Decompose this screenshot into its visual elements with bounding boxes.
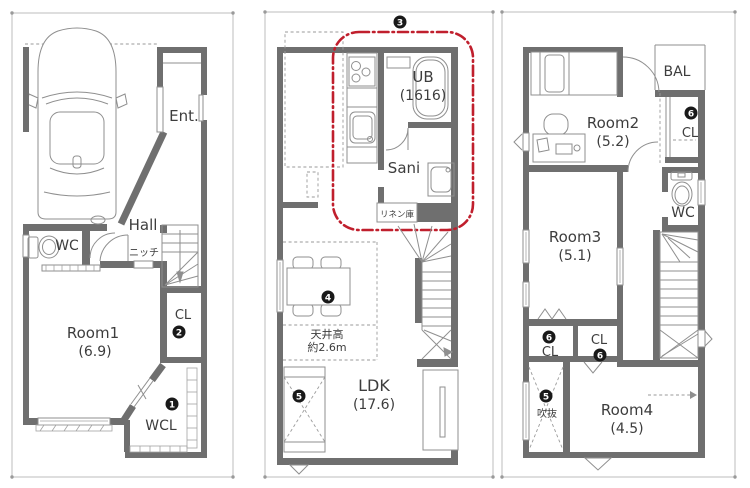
stairs-f2 — [398, 224, 452, 359]
marker-6-room2: 6 — [685, 107, 698, 120]
wcl-hatch — [130, 368, 197, 452]
svg-text:4: 4 — [325, 294, 331, 304]
label-void: 吹抜 — [537, 407, 557, 420]
desk-icon — [533, 114, 585, 162]
marker-3: 3 — [394, 16, 407, 29]
label-hall: Hall — [129, 216, 158, 234]
label-ub: UB — [412, 68, 433, 86]
label-room2-size: (5.2) — [596, 134, 629, 150]
room4-arrow — [648, 391, 697, 399]
label-ceiling-1: 天井高 — [311, 327, 344, 341]
svg-text:6: 6 — [688, 110, 694, 120]
casement-window-mark — [514, 134, 522, 150]
label-bal: BAL — [664, 64, 691, 80]
marker-5-f2: 5 — [293, 390, 306, 403]
stairs-f3 — [660, 232, 698, 358]
wc-door-arc — [90, 233, 115, 258]
car-icon — [27, 28, 127, 219]
balcony-door-arc — [623, 57, 659, 92]
kitchen-counter — [347, 53, 377, 163]
label-cl-f1: CL — [175, 308, 192, 323]
marker-4: 4 — [322, 291, 335, 304]
floor1-plan: Ent. Hall WC ニッチ CL Room1 (6.9) WCL 2 1 — [10, 11, 234, 478]
label-ceiling-2: 約2.6m — [307, 340, 346, 354]
floor3-plan: BAL Room2 (5.2) 6 CL WC Room3 (5.1) 6 CL… — [500, 10, 736, 478]
bed-icon — [531, 52, 617, 95]
svg-text:5: 5 — [543, 393, 549, 403]
label-cl-room2: CL — [682, 126, 699, 141]
label-room3: Room3 — [549, 228, 601, 246]
stair-exit-door — [705, 331, 712, 346]
floorplan-page: Ent. Hall WC ニッチ CL Room1 (6.9) WCL 2 1 — [0, 0, 750, 488]
toilet-icon-f3 — [671, 172, 692, 206]
label-ub-size: (1616) — [400, 88, 447, 104]
label-room4-size: (4.5) — [610, 421, 643, 437]
svg-text:5: 5 — [296, 393, 302, 403]
label-ldk-size: (17.6) — [353, 397, 395, 413]
floorplan-drawing: Ent. Hall WC ニッチ CL Room1 (6.9) WCL 2 1 — [0, 0, 750, 488]
marker-6-cl-right: 6 — [594, 349, 607, 362]
closet-door-mark-right — [584, 362, 602, 373]
marker-6-cl-left: 6 — [543, 331, 556, 344]
closet-bifold-mark-left — [538, 309, 566, 319]
cupboard-dashed-small — [307, 172, 318, 197]
marker-5-void: 5 — [540, 390, 553, 403]
svg-text:6: 6 — [546, 334, 552, 344]
label-room4: Room4 — [601, 401, 653, 419]
tall-window-f2 — [423, 370, 458, 450]
wcl-door — [131, 378, 153, 407]
svg-text:1: 1 — [169, 401, 175, 411]
storage-unit-f2 — [284, 367, 325, 452]
label-room3-size: (5.1) — [558, 248, 591, 264]
room1-door-arc — [100, 235, 128, 261]
marker-1: 1 — [166, 398, 179, 411]
label-room1-size: (6.9) — [78, 344, 111, 360]
label-cl-left: CL — [542, 345, 559, 360]
label-ent: Ent. — [169, 107, 199, 125]
label-niche: ニッチ — [129, 247, 159, 259]
washer-icon — [428, 163, 454, 196]
bay-mark-f3 — [585, 458, 611, 470]
stairs-f1 — [162, 225, 198, 287]
label-room2: Room2 — [587, 114, 639, 132]
label-wc-f1: WC — [55, 238, 79, 254]
window-sill-hatch — [36, 425, 112, 431]
marker-2: 2 — [173, 326, 186, 339]
label-wcl: WCL — [145, 418, 177, 434]
chair-icon — [544, 114, 568, 135]
ub-door-arc — [386, 128, 408, 150]
dining-table — [287, 268, 350, 305]
svg-text:3: 3 — [397, 19, 403, 29]
label-cl-right: CL — [591, 333, 608, 348]
label-room1: Room1 — [67, 324, 119, 342]
svg-text:6: 6 — [597, 352, 603, 362]
label-sani: Sani — [388, 159, 420, 177]
svg-text:2: 2 — [176, 329, 182, 339]
entrance-door — [199, 95, 203, 121]
label-linen: リネン庫 — [380, 209, 415, 220]
floor2-plan: 3 UB (1616) Sani リネン庫 4 天井高 約2.6m LDK (1… — [263, 10, 494, 478]
dining-set — [287, 257, 350, 316]
label-ldk: LDK — [358, 376, 390, 395]
room2-door-arc — [628, 142, 658, 172]
bay-mark-f2 — [290, 465, 308, 474]
niche-shelf — [134, 261, 153, 268]
label-wc-f3: WC — [671, 205, 695, 221]
